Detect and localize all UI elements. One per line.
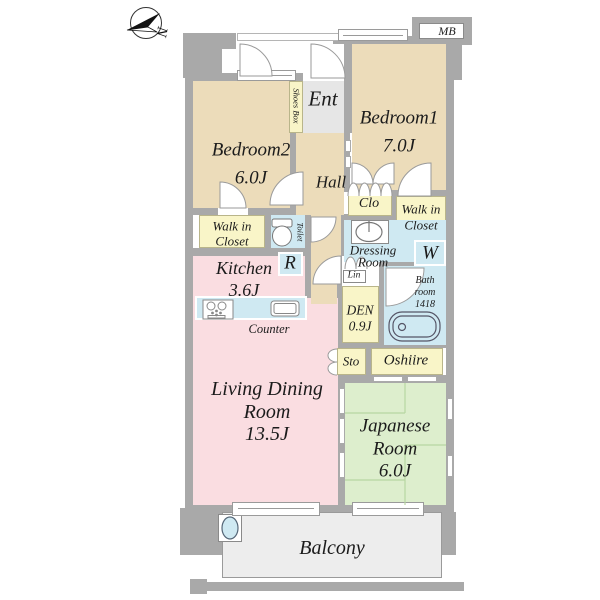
bedroom1-door-arc [398,163,431,196]
japanese-size: 6.0J [379,462,411,481]
japanese-label2: Room [373,440,417,459]
kitchen-label: Kitchen [216,259,272,277]
meter-box-label: MB [438,25,455,37]
sto-label: Sto [343,355,360,368]
bedroom1-label: Bedroom1 [360,109,438,128]
bedroom2-label: Bedroom2 [212,141,290,160]
north-label: N [152,24,170,39]
hall-label: Hall [316,174,346,191]
clo-bifold [348,183,392,196]
clo-door-arc [373,163,394,184]
washer-label: W [422,244,438,263]
sink-icon [271,301,299,316]
sto-bifold [328,349,337,375]
shoes-box-label: Shoes Box [292,88,301,123]
wic-right-label: Walk in [402,203,441,216]
stove-icon [203,300,233,319]
faucet-icon [222,517,238,539]
entrance-label: Ent [308,89,337,110]
wash-basin-icon [356,221,382,242]
counter-label: Counter [249,323,290,336]
north-arrow: N [127,8,170,39]
bathroom-label2: room [415,288,436,298]
porch-door-arc [240,44,272,76]
oshiire-label: Oshiire [384,354,428,369]
clo-door-arc [352,163,373,184]
den-size: 0.9J [349,319,372,333]
wic-right-label2: Closet [404,219,437,232]
wic-left-label: Walk in [213,220,252,233]
linen-label: Lin [348,271,361,281]
bathroom-label3: 1418 [415,300,435,310]
living-dining-label: Living Dining [211,379,323,399]
refrigerator-label: R [284,254,296,273]
toilet-door-arc [311,217,336,242]
balcony-label: Balcony [299,538,365,558]
clo-label: Clo [359,197,379,211]
wic-left-label2: Closet [215,235,248,248]
bedroom2-door-arc [270,172,303,205]
bedroom2-size: 6.0J [235,169,267,188]
living-dining-size: 13.5J [245,424,289,444]
bathtub-icon [389,312,440,341]
living-dining-label2: Room [244,402,291,422]
japanese-label: Japanese [360,417,431,436]
bedroom1-size: 7.0J [383,137,415,156]
den-label: DEN [347,303,374,317]
floor-plan: N Bedroom2 6.0J Bedroom1 7.0J Ent Hall S… [0,0,600,600]
dressing-label2: Room [358,256,388,269]
toilet-icon [272,219,292,246]
hall-door-arc [313,256,341,284]
bathroom-label: Bath [416,276,435,286]
entrance-door-arc [311,44,345,78]
toilet-label: Toilet [296,222,305,241]
kitchen-size: 3.6J [229,281,260,299]
